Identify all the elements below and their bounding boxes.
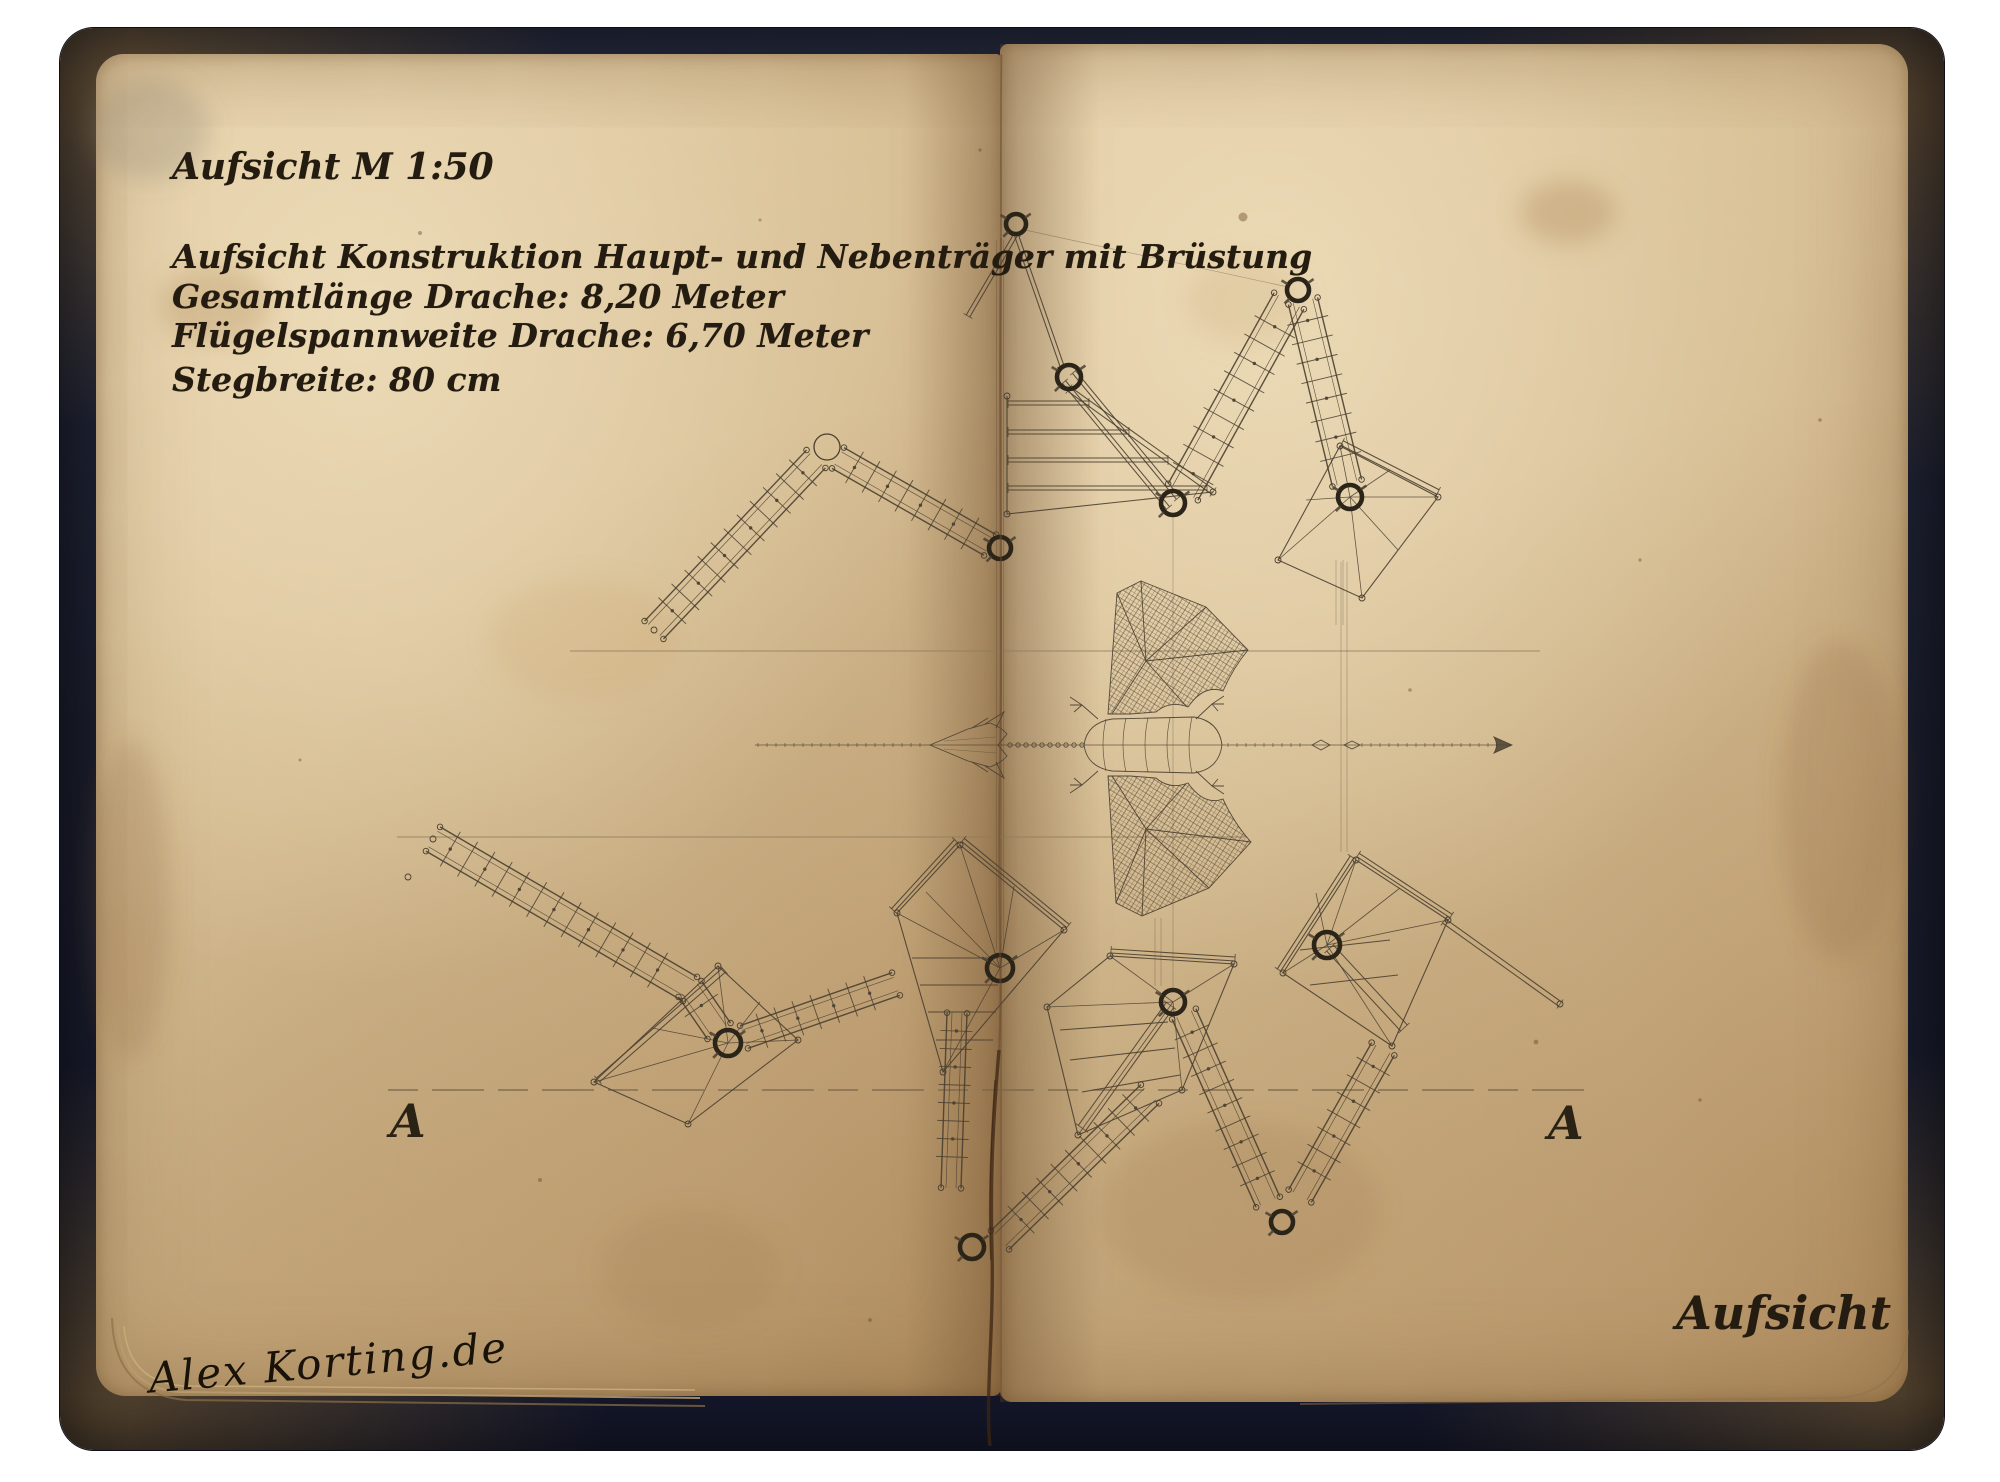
walkway-upper-left bbox=[642, 447, 828, 641]
walkway-lower-left-long bbox=[423, 824, 700, 1004]
walkway-to-right-kite bbox=[1286, 295, 1365, 490]
note-line-4: Stegbreite: 80 cm bbox=[172, 360, 501, 399]
note-line-3: Flügelspannweite Drache: 6,70 Meter bbox=[172, 316, 868, 355]
view-label: Aufsicht bbox=[1676, 1286, 1891, 1340]
blueprint-drawing bbox=[0, 0, 2000, 1482]
kite1-spokes bbox=[1278, 446, 1438, 598]
dragon-figure bbox=[755, 581, 1512, 916]
kite4-east-beam bbox=[1441, 917, 1563, 1009]
dragon-tail-spade bbox=[1494, 737, 1512, 753]
walkway-lower-center-link bbox=[737, 970, 903, 1051]
joint-node-upper-left bbox=[814, 434, 840, 460]
section-marker-left: A bbox=[390, 1094, 426, 1148]
column-node-kite4 bbox=[1309, 932, 1344, 960]
platform-kite-lower-right bbox=[1283, 860, 1448, 1046]
scale-label: Aufsicht M 1:50 bbox=[172, 146, 494, 188]
kite4-spokes bbox=[1283, 860, 1448, 1046]
dragon-wing-upper bbox=[1108, 581, 1248, 714]
dragon-claw-hind-up bbox=[1196, 696, 1224, 719]
book-photo: Aufsicht M 1:50 Aufsicht Konstruktion Ha… bbox=[0, 0, 2000, 1482]
dragon-claw-hind-down bbox=[1196, 771, 1224, 794]
section-marker-right: A bbox=[1548, 1096, 1584, 1150]
note-line-1: Aufsicht Konstruktion Haupt- und Nebentr… bbox=[172, 237, 1312, 276]
perch-ridge-beam bbox=[594, 966, 727, 1084]
platform-kite-upper-right bbox=[1278, 446, 1438, 598]
kite4-corridor bbox=[1324, 943, 1409, 1033]
kite4-railing-1 bbox=[1355, 851, 1453, 920]
note-line-2: Gesamtlänge Drache: 8,20 Meter bbox=[172, 277, 784, 316]
dragon-wing-lower bbox=[1108, 776, 1251, 916]
